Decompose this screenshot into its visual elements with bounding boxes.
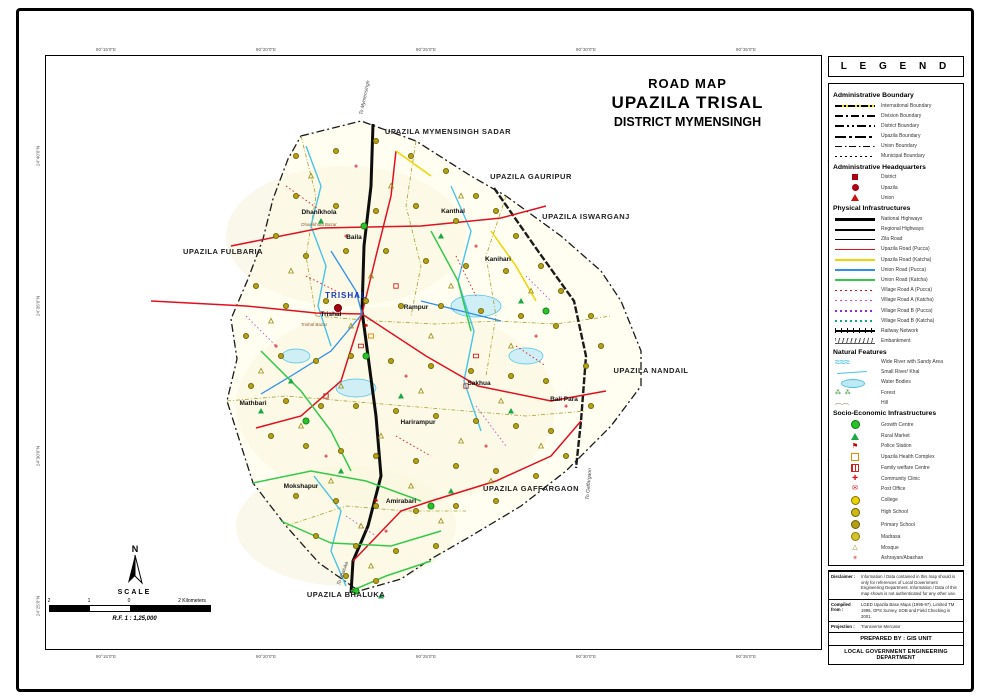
scalebar-tick-label: 0 <box>128 598 131 604</box>
legend-item-label: Upazila Health Complex <box>881 454 935 460</box>
school-icon <box>493 498 498 503</box>
legend-item-label: Railway Network <box>881 328 918 334</box>
school-icon <box>373 208 378 213</box>
hq-circle-icon <box>835 184 875 191</box>
legend-item: Village Road B (Pucca) <box>835 307 959 314</box>
forest-icon: ⁂ ⁂ <box>835 389 875 396</box>
legend-item-label: Primary School <box>881 522 915 528</box>
school-icon <box>373 138 378 143</box>
school-icon <box>343 248 348 253</box>
scalebar-segment <box>90 606 130 611</box>
legend-item-label: Wide River with Sandy Area <box>881 359 943 365</box>
nh-line-sample <box>835 215 875 222</box>
graticule-label: 90°20'0"E <box>256 47 276 52</box>
school-icon <box>563 453 568 458</box>
community-clinic-icon: + <box>274 344 278 351</box>
graticule-label: 90°15'0"E <box>96 654 116 659</box>
legend-item-label: Zila Road <box>881 236 902 242</box>
school-icon <box>413 458 418 463</box>
legend-item: Union Road (Katcha) <box>835 276 959 283</box>
north-arrow-icon: N <box>120 543 150 587</box>
school-icon <box>293 193 298 198</box>
school-icon <box>313 358 318 363</box>
school-icon <box>553 323 558 328</box>
legend-item: △Mosque <box>835 544 959 551</box>
legend-item: Zila Road <box>835 236 959 243</box>
high-icon <box>835 508 875 517</box>
credits-block: Disclaimer :Information / Data contained… <box>828 570 964 665</box>
school-icon <box>453 218 458 223</box>
legend-item-label: Post Office <box>881 486 905 492</box>
post-icon: ✉ <box>835 485 875 492</box>
intl-line-sample <box>835 102 875 109</box>
legend-item: ︵︵Hill <box>835 399 959 406</box>
legend-item-label: Union Road (Katcha) <box>881 277 928 283</box>
school-icon <box>303 443 308 448</box>
growth-centre-icon <box>543 308 549 314</box>
graticule-label: 24°40'0"N <box>36 146 41 166</box>
water-body <box>509 348 543 364</box>
school-icon <box>473 418 478 423</box>
adjacent-upazila-label: UPAZILA BHALUKA <box>307 590 385 599</box>
school-icon <box>278 353 283 358</box>
legend-item-label: Madrasa <box>881 534 900 540</box>
school-icon <box>373 578 378 583</box>
legend-section-heading: Administrative Boundary <box>833 92 959 99</box>
school-icon <box>283 303 288 308</box>
school-icon <box>453 503 458 508</box>
vak-line-sample <box>835 297 875 304</box>
school-icon <box>478 308 483 313</box>
credit-row: Projection :Transverse Mercator <box>829 622 963 633</box>
legend-item: Madrasa <box>835 532 959 541</box>
scalebar-tick-label: 2 <box>48 598 51 604</box>
legend-item: International Boundary <box>835 102 959 109</box>
legend-item-label: Union <box>881 195 894 201</box>
community-clinic-icon: + <box>404 374 408 381</box>
school-icon <box>333 148 338 153</box>
legend-body: Administrative BoundaryInternational Bou… <box>828 83 964 566</box>
map-sheet: ++++++++++⚑⚑DhanikholaKanthalBailaKaniha… <box>0 0 990 700</box>
legend-item: ✉Post Office <box>835 485 959 492</box>
small-river-icon <box>835 369 875 376</box>
school-icon <box>433 543 438 548</box>
legend-item: High School <box>835 508 959 517</box>
legend-item: Municipal Boundary <box>835 153 959 160</box>
vap-line-sample <box>835 287 875 294</box>
title-block: ROAD MAP UPAZILA TRISAL DISTRICT MYMENSI… <box>560 76 815 129</box>
adjacent-upazila-label: UPAZILA GAURIPUR <box>490 172 572 181</box>
legend-item-label: Upazila <box>881 185 898 191</box>
zr-line-sample <box>835 236 875 243</box>
map-subtitle-upazila: UPAZILA TRISAL <box>560 93 815 113</box>
graticule-label: 90°30'0"E <box>576 654 596 659</box>
legend-item-label: Upazila Road (Pucca) <box>881 246 930 252</box>
college-icon <box>835 496 875 505</box>
school-icon <box>333 498 338 503</box>
legend-item-label: Regional Highways <box>881 226 924 232</box>
graticule-label: 90°35'0"E <box>736 654 756 659</box>
legend-item: District <box>835 174 959 181</box>
school-icon <box>383 248 388 253</box>
legend-item: Union Boundary <box>835 143 959 150</box>
legend-item-label: Police Station <box>881 443 912 449</box>
graticule-label: 24°35'0"N <box>36 296 41 316</box>
credit-text: Transverse Mercator <box>861 624 961 630</box>
ashrayan-icon: ✶ <box>835 555 875 562</box>
community-clinic-icon: + <box>474 244 478 251</box>
legend-item-label: District Boundary <box>881 123 919 129</box>
legend-item: ⚑Police Station <box>835 443 959 450</box>
legend-section-heading: Physical Infrastructures <box>833 205 959 212</box>
legend-item-label: Embankment <box>881 338 910 344</box>
legend-item: Family welfare Centre <box>835 464 959 472</box>
school-icon <box>508 373 513 378</box>
legend-item: Upazila Road (Pucca) <box>835 246 959 253</box>
legend-item-label: College <box>881 497 898 503</box>
school-icon <box>268 433 273 438</box>
legend-item-label: Hill <box>881 400 888 406</box>
school-icon <box>598 343 603 348</box>
legend-item-label: Upazila Road (Katcha) <box>881 257 931 263</box>
credit-label: Disclaimer : <box>831 574 861 597</box>
school-icon <box>393 408 398 413</box>
adjacent-upazila-label: UPAZILA ISWARGANJ <box>542 212 630 221</box>
school-icon <box>293 493 298 498</box>
school-icon <box>373 453 378 458</box>
school-icon <box>273 233 278 238</box>
scalebar-labels: 2102 Kilometers <box>47 598 222 605</box>
legend-item: Upazila Road (Katcha) <box>835 256 959 263</box>
legend-item: Small River/ Khal <box>835 369 959 376</box>
school-icon <box>253 283 258 288</box>
clinic-icon: ✚ <box>835 475 875 482</box>
legend-item: Village Road B (Katcha) <box>835 317 959 324</box>
legend-item-label: Municipal Boundary <box>881 153 925 159</box>
town-label: Mokshapur <box>284 483 319 490</box>
vbk-line-sample <box>835 317 875 324</box>
legend-item: Primary School <box>835 520 959 529</box>
legend-item-label: Village Road B (Pucca) <box>881 308 933 314</box>
vbp-line-sample <box>835 307 875 314</box>
town-label: Baila <box>346 234 362 241</box>
school-icon <box>313 533 318 538</box>
school-icon <box>423 258 428 263</box>
legend-item: ⁂ ⁂Forest <box>835 389 959 396</box>
school-icon <box>473 193 478 198</box>
town-label: Trishal <box>321 311 342 318</box>
town-label: Amirabari <box>386 498 417 505</box>
legend-item: Embankment <box>835 338 959 345</box>
school-icon <box>453 463 458 468</box>
graticule-label: 90°35'0"E <box>736 47 756 52</box>
town-label: Rampur <box>404 304 429 311</box>
graticule-label: 90°30'0"E <box>576 47 596 52</box>
rh-line-sample <box>835 226 875 233</box>
legend-section-heading: Socio-Economic Infrastructures <box>833 410 959 417</box>
town-label: Kanthal <box>441 208 465 215</box>
community-clinic-icon: + <box>324 454 328 461</box>
growth-centre-icon <box>303 418 309 424</box>
graticule-label: 90°25'0"E <box>416 654 436 659</box>
police-station-icon: ⚑ <box>363 323 368 330</box>
community-clinic-icon: + <box>534 334 538 341</box>
adjacent-upazila-label: UPAZILA GAFFARGAON <box>483 484 579 493</box>
madrasa-icon <box>835 532 875 541</box>
school-icon <box>413 203 418 208</box>
growth-centre-icon <box>361 223 367 229</box>
dist-line-sample <box>835 122 875 129</box>
legend-item-label: Village Road B (Katcha) <box>881 318 934 324</box>
legend-item-label: Upazila Boundary <box>881 133 920 139</box>
school-icon <box>353 403 358 408</box>
map-title: ROAD MAP <box>560 76 815 91</box>
school-icon <box>503 268 508 273</box>
unp-line-sample <box>835 266 875 273</box>
health-icon <box>835 453 875 461</box>
school-icon <box>533 473 538 478</box>
growth-centre-icon <box>428 503 434 509</box>
legend-item: Upazila Boundary <box>835 133 959 140</box>
school-icon <box>293 153 298 158</box>
legend-item: District Boundary <box>835 122 959 129</box>
svg-text:N: N <box>131 544 138 554</box>
scalebar <box>49 605 211 612</box>
community-clinic-icon: + <box>484 444 488 451</box>
school-icon <box>518 313 523 318</box>
legend-item-label: International Boundary <box>881 103 931 109</box>
graticule-label: 24°30'0"N <box>36 446 41 466</box>
adjacent-upazila-label: UPAZILA FULBARIA <box>183 247 263 256</box>
adjacent-upazila-label: UPAZILA MYMENSINGH SADAR <box>385 127 511 136</box>
legend-item: National Highways <box>835 215 959 222</box>
legend-item: Village Road A (Katcha) <box>835 297 959 304</box>
school-icon <box>543 378 548 383</box>
credit-row: Disclaimer :Information / Data contained… <box>829 572 963 600</box>
health-complex-icon <box>368 334 373 338</box>
scale-word: SCALE <box>47 589 222 596</box>
legend-item-label: Small River/ Khal <box>881 369 919 375</box>
school-icon <box>338 448 343 453</box>
scalebar-tick-label: 1 <box>88 598 91 604</box>
school-icon <box>433 413 438 418</box>
police-icon: ⚑ <box>835 443 875 450</box>
municipality-label: TRISHAL <box>325 291 367 300</box>
legend-item-label: Water Bodies <box>881 379 911 385</box>
school-icon <box>348 353 353 358</box>
hq-triangle-icon <box>835 194 875 201</box>
school-icon <box>393 548 398 553</box>
bazar-label: Trishal Bazar <box>301 322 328 327</box>
legend-item-label: Union Road (Pucca) <box>881 267 926 273</box>
prepared-by: PREPARED BY : GIS UNIT <box>829 633 963 646</box>
legend-item-label: Union Boundary <box>881 143 917 149</box>
representative-fraction: R.F. 1 : 1,25,000 <box>47 616 222 622</box>
school-icon <box>463 263 468 268</box>
school-icon <box>493 468 498 473</box>
urk-line-sample <box>835 256 875 263</box>
road-destination-label: To Mymensingh <box>358 80 371 116</box>
legend-item: Upazila Health Complex <box>835 453 959 461</box>
school-icon <box>333 203 338 208</box>
town-label: Bali Para <box>550 396 578 403</box>
legend-item-label: Community Clinic <box>881 476 920 482</box>
legend-item: Division Boundary <box>835 112 959 119</box>
school-icon <box>513 233 518 238</box>
emb-line-sample <box>835 338 875 345</box>
water-body <box>282 349 310 363</box>
school-icon <box>548 428 553 433</box>
unk-line-sample <box>835 276 875 283</box>
fwc-icon <box>835 464 875 472</box>
school-icon <box>493 208 498 213</box>
legend-item: Upazila <box>835 184 959 191</box>
mun-line-sample <box>835 153 875 160</box>
town-label: Mathbari <box>239 400 266 407</box>
town-label: Dhanikhola <box>301 209 336 216</box>
rail-line-sample <box>835 327 875 334</box>
scalebar-segment <box>50 606 90 611</box>
legend-section-heading: Administrative Headquarters <box>833 164 959 171</box>
legend-item-label: Growth Centre <box>881 422 914 428</box>
legend-item-label: Forest <box>881 390 895 396</box>
school-icon <box>388 358 393 363</box>
graticule-label: 24°25'0"N <box>36 596 41 616</box>
legend-item-label: Village Road A (Katcha) <box>881 297 934 303</box>
hill-icon: ︵︵ <box>835 399 875 406</box>
legend-panel: L E G E N D Administrative BoundaryInter… <box>828 56 964 644</box>
legend-item-label: Family welfare Centre <box>881 465 930 471</box>
legend-item: Rural Market <box>835 433 959 440</box>
graticule-label: 90°15'0"E <box>96 47 116 52</box>
legend-item-label: National Highways <box>881 216 922 222</box>
school-icon <box>248 383 253 388</box>
school-icon <box>318 403 323 408</box>
legend-item: ✚Community Clinic <box>835 475 959 482</box>
graticule-label: 90°25'0"E <box>416 47 436 52</box>
legend-item-label: Division Boundary <box>881 113 921 119</box>
legend-item: Railway Network <box>835 327 959 334</box>
school-icon <box>558 288 563 293</box>
legend-item: College <box>835 496 959 505</box>
credit-row: Compiled from :LGED Upazila Base Maps (1… <box>829 600 963 622</box>
department: LOCAL GOVERNMENT ENGINEERING DEPARTMENT <box>829 646 963 664</box>
school-icon <box>468 368 473 373</box>
school-icon <box>408 153 413 158</box>
credit-text: Information / Data contained in this map… <box>861 574 961 597</box>
wide-river-icon: ≈≈≈ <box>835 359 875 366</box>
legend-item-label: Rural Market <box>881 433 910 439</box>
growth-icon <box>835 420 875 429</box>
school-icon <box>443 168 448 173</box>
growth-centre-icon <box>363 353 369 359</box>
market-icon <box>835 433 875 440</box>
graticule-label: 90°20'0"E <box>256 654 276 659</box>
primary-icon <box>835 520 875 529</box>
school-icon <box>428 363 433 368</box>
road-destination-label: To Gaffargaon <box>585 468 594 500</box>
school-icon <box>353 543 358 548</box>
legend-title: L E G E N D <box>828 56 964 77</box>
adjacent-upazila-label: UPAZILA NANDAIL <box>614 366 689 375</box>
credit-text: LGED Upazila Base Maps (1995-97), Limite… <box>861 602 961 619</box>
scalebar-tick-label: 2 Kilometers <box>178 598 206 604</box>
upz-line-sample <box>835 133 875 140</box>
scale-block: N SCALE 2102 Kilometers R.F. 1 : 1,25,00… <box>47 543 222 622</box>
map-subtitle-district: DISTRICT MYMENSINGH <box>560 115 815 129</box>
legend-item: Water Bodies <box>835 379 959 386</box>
town-label: Sakhua <box>467 380 491 387</box>
school-icon <box>583 363 588 368</box>
school-icon <box>283 398 288 403</box>
hq-square-icon <box>835 174 875 180</box>
legend-item-label: Village Road A (Pucca) <box>881 287 932 293</box>
community-clinic-icon: + <box>564 404 568 411</box>
legend-item: ✶Ashrayan/Abashan <box>835 555 959 562</box>
credit-label: Compiled from : <box>831 602 861 619</box>
scalebar-segment <box>130 606 210 611</box>
town-label: Harirampur <box>400 419 436 426</box>
div-line-sample <box>835 112 875 119</box>
legend-item-label: District <box>881 174 896 180</box>
school-icon <box>588 313 593 318</box>
school-icon <box>303 253 308 258</box>
legend-item-label: Mosque <box>881 545 899 551</box>
school-icon <box>413 508 418 513</box>
legend-item: Village Road A (Pucca) <box>835 287 959 294</box>
legend-item: Union <box>835 194 959 201</box>
legend-item-label: Ashrayan/Abashan <box>881 555 923 561</box>
school-icon <box>588 403 593 408</box>
legend-item-label: High School <box>881 509 908 515</box>
legend-item: Union Road (Pucca) <box>835 266 959 273</box>
school-icon <box>513 423 518 428</box>
urp-line-sample <box>835 246 875 253</box>
water-body <box>451 295 501 317</box>
police-station-icon: ⚑ <box>373 498 378 505</box>
school-icon <box>438 303 443 308</box>
legend-section-heading: Natural Features <box>833 349 959 356</box>
legend-item: Growth Centre <box>835 420 959 429</box>
community-clinic-icon: + <box>384 529 388 536</box>
bazar-label: Dhanikhola Bazar <box>301 222 337 227</box>
school-icon <box>243 333 248 338</box>
uni-line-sample <box>835 143 875 150</box>
legend-item: ≈≈≈Wide River with Sandy Area <box>835 359 959 366</box>
school-icon <box>538 263 543 268</box>
credit-label: Projection : <box>831 624 861 630</box>
legend-item: Regional Highways <box>835 226 959 233</box>
community-clinic-icon: + <box>354 164 358 171</box>
town-label: Kanihari <box>485 256 511 263</box>
water-icon <box>835 379 875 386</box>
mosque-icon: △ <box>835 544 875 551</box>
